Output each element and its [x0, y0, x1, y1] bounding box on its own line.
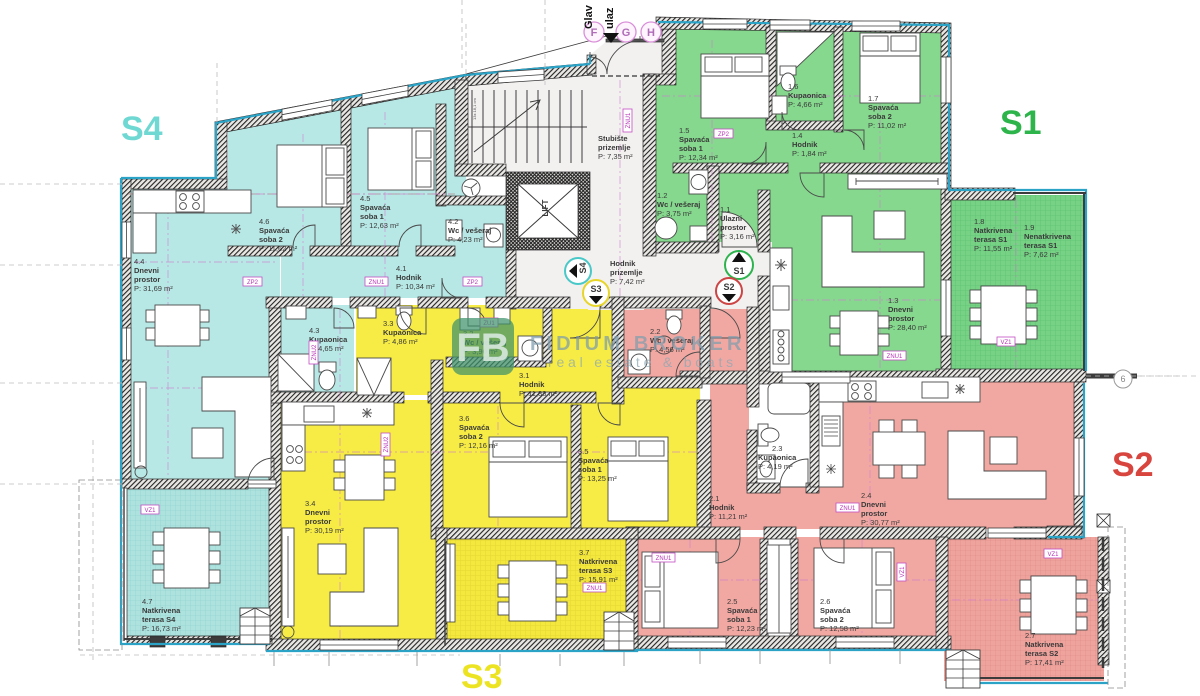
svg-text:Dnevni: Dnevni [861, 500, 886, 509]
svg-text:4.6: 4.6 [259, 217, 269, 226]
svg-text:P: 13,25 m²: P: 13,25 m² [578, 474, 617, 483]
svg-text:1.5: 1.5 [679, 126, 689, 135]
svg-text:2.6: 2.6 [820, 597, 830, 606]
svg-text:FB: FB [456, 326, 509, 370]
svg-text:real estate & boats: real estate & boats [548, 354, 737, 370]
svg-text:Spavaća: Spavaća [578, 456, 609, 465]
svg-text:prizemlje: prizemlje [598, 143, 631, 152]
svg-text:4.2: 4.2 [448, 217, 458, 226]
svg-text:4.3: 4.3 [309, 326, 319, 335]
svg-text:H: H [647, 27, 655, 39]
svg-text:soba 2: soba 2 [459, 432, 483, 441]
svg-text:Nenatkrivena: Nenatkrivena [1024, 232, 1072, 241]
svg-text:prizemlje: prizemlje [610, 268, 643, 277]
svg-text:4.7: 4.7 [142, 597, 152, 606]
svg-text:P: 17,41 m²: P: 17,41 m² [1025, 658, 1064, 667]
svg-text:Kupaonica: Kupaonica [758, 453, 797, 462]
svg-text:terasa S1: terasa S1 [1024, 241, 1057, 250]
svg-text:3.6: 3.6 [459, 414, 469, 423]
svg-text:S3: S3 [461, 658, 503, 696]
svg-text:Dnevni: Dnevni [888, 305, 913, 314]
svg-text:Natkrivena: Natkrivena [579, 557, 618, 566]
svg-text:Spavaća: Spavaća [868, 103, 899, 112]
svg-text:Spavaća: Spavaća [727, 606, 758, 615]
svg-text:S4: S4 [121, 110, 163, 148]
svg-text:3.4: 3.4 [305, 499, 315, 508]
svg-text:Natkrivena: Natkrivena [1025, 640, 1064, 649]
svg-text:P: 16,73 m²: P: 16,73 m² [142, 624, 181, 633]
svg-text:2.1: 2.1 [709, 494, 719, 503]
svg-text:S2: S2 [723, 282, 734, 292]
svg-text:S4: S4 [578, 262, 588, 273]
svg-text:P: 4,23 m²: P: 4,23 m² [448, 235, 483, 244]
svg-text:1.2: 1.2 [657, 191, 667, 200]
svg-text:soba 1: soba 1 [578, 465, 602, 474]
svg-text:Hodnik: Hodnik [519, 380, 545, 389]
svg-text:P: 7,35 m²: P: 7,35 m² [598, 152, 633, 161]
svg-text:13x 18,1 cm: 13x 18,1 cm [472, 98, 477, 120]
svg-text:1.1: 1.1 [720, 205, 730, 214]
svg-text:S1: S1 [1000, 104, 1042, 142]
svg-text:P: 4,86 m²: P: 4,86 m² [383, 337, 418, 346]
svg-text:Natkrivena: Natkrivena [142, 606, 181, 615]
svg-text:ulaz: ulaz [604, 7, 616, 29]
svg-text:soba 2: soba 2 [868, 112, 892, 121]
svg-text:LIFT: LIFT [541, 199, 550, 216]
svg-text:4.5: 4.5 [360, 194, 370, 203]
svg-text:P: 11,21 m²: P: 11,21 m² [709, 512, 748, 521]
svg-text:S1: S1 [733, 266, 744, 276]
svg-text:P: 4,19 m²: P: 4,19 m² [758, 462, 793, 471]
svg-text:P: 12,58 m²: P: 12,58 m² [820, 624, 859, 633]
svg-text:P: 12,34 m²: P: 12,34 m² [679, 153, 718, 162]
svg-text:Stubište: Stubište [598, 134, 628, 143]
svg-text:Spavaća: Spavaća [360, 203, 391, 212]
svg-text:1.9: 1.9 [1024, 223, 1034, 232]
svg-text:2.5: 2.5 [727, 597, 737, 606]
svg-text:VZ1: VZ1 [1047, 552, 1059, 558]
svg-text:G: G [622, 27, 631, 39]
svg-text:Wc / vešeraj: Wc / vešeraj [657, 200, 700, 209]
svg-text:VZ1: VZ1 [144, 508, 156, 514]
svg-text:Hodnik: Hodnik [396, 273, 422, 282]
svg-text:P: 1,84 m²: P: 1,84 m² [792, 149, 827, 158]
svg-text:S3: S3 [590, 284, 601, 294]
svg-text:3.5: 3.5 [578, 447, 588, 456]
svg-text:1.6: 1.6 [788, 82, 798, 91]
svg-text:soba 1: soba 1 [679, 144, 703, 153]
svg-text:Hodnik: Hodnik [792, 140, 818, 149]
svg-text:ZP2: ZP2 [247, 280, 259, 286]
svg-text:Spavaća: Spavaća [259, 226, 290, 235]
svg-text:soba 2: soba 2 [259, 235, 283, 244]
svg-text:P: 7,62 m²: P: 7,62 m² [1024, 250, 1059, 259]
svg-text:2.4: 2.4 [861, 491, 871, 500]
svg-text:P: 10,34 m²: P: 10,34 m² [396, 282, 435, 291]
svg-text:terasa S4: terasa S4 [142, 615, 176, 624]
svg-text:Dnevni: Dnevni [305, 508, 330, 517]
svg-text:terasa S3: terasa S3 [579, 566, 612, 575]
svg-text:Hodnik: Hodnik [610, 259, 636, 268]
svg-text:P: 7,42 m²: P: 7,42 m² [610, 277, 645, 286]
svg-text:3.3: 3.3 [383, 319, 393, 328]
svg-text:P: 4,66 m²: P: 4,66 m² [788, 100, 823, 109]
svg-text:ZNU1: ZNU1 [369, 280, 385, 286]
svg-text:P: 3,75 m²: P: 3,75 m² [657, 209, 692, 218]
svg-text:P: 12,16 m²: P: 12,16 m² [459, 441, 498, 450]
svg-text:P: 30,77 m²: P: 30,77 m² [861, 518, 900, 527]
svg-text:4.1: 4.1 [396, 264, 406, 273]
svg-text:Dnevni: Dnevni [134, 266, 159, 275]
svg-text:1.3: 1.3 [888, 296, 898, 305]
svg-text:P: 11,62 m²: P: 11,62 m² [259, 244, 298, 253]
svg-text:P: 11,55 m²: P: 11,55 m² [974, 244, 1013, 253]
svg-text:ZNU1: ZNU1 [887, 354, 903, 360]
svg-text:prostor: prostor [720, 223, 746, 232]
svg-text:4.4: 4.4 [134, 257, 144, 266]
svg-text:P: 12,63 m²: P: 12,63 m² [360, 221, 399, 230]
svg-text:2.3: 2.3 [772, 444, 782, 453]
svg-text:3.1: 3.1 [519, 371, 529, 380]
svg-text:1.8: 1.8 [974, 217, 984, 226]
svg-text:P: 11,02 m²: P: 11,02 m² [868, 121, 907, 130]
svg-text:2.7: 2.7 [1025, 631, 1035, 640]
svg-text:P: 3,16 m²: P: 3,16 m² [720, 232, 755, 241]
svg-text:1.7: 1.7 [868, 94, 878, 103]
svg-text:VZ1: VZ1 [1000, 340, 1012, 346]
svg-text:Kupaonica: Kupaonica [383, 328, 422, 337]
svg-text:Spavaća: Spavaća [820, 606, 851, 615]
svg-text:P: 28,40 m²: P: 28,40 m² [888, 323, 927, 332]
svg-text:terasa S2: terasa S2 [1025, 649, 1058, 658]
svg-text:Kupaonica: Kupaonica [788, 91, 827, 100]
svg-text:S2: S2 [1112, 446, 1154, 484]
svg-text:soba 2: soba 2 [820, 615, 844, 624]
svg-text:VZ1: VZ1 [900, 566, 906, 578]
svg-text:prostor: prostor [134, 275, 160, 284]
svg-text:ZP2: ZP2 [718, 132, 730, 138]
svg-text:soba 1: soba 1 [727, 615, 751, 624]
svg-text:P: 31,69 m²: P: 31,69 m² [134, 284, 173, 293]
svg-text:P: 12,23 m²: P: 12,23 m² [727, 624, 766, 633]
svg-text:ZNU1: ZNU1 [587, 586, 603, 592]
svg-text:P: 11,88 m²: P: 11,88 m² [519, 389, 558, 398]
svg-text:Wc / vešeraj: Wc / vešeraj [448, 226, 491, 235]
svg-text:ZNU2: ZNU2 [384, 436, 390, 452]
svg-text:Spavaća: Spavaća [679, 135, 710, 144]
svg-text:6: 6 [1120, 374, 1125, 384]
svg-text:soba 1: soba 1 [360, 212, 384, 221]
svg-text:Ulazni: Ulazni [720, 214, 742, 223]
svg-text:prostor: prostor [888, 314, 914, 323]
svg-text:FIDIUM BROKER: FIDIUM BROKER [530, 333, 746, 355]
svg-text:terasa S1: terasa S1 [974, 235, 1007, 244]
svg-text:3.7: 3.7 [579, 548, 589, 557]
svg-text:ZNU1: ZNU1 [626, 112, 632, 128]
svg-text:Hodnik: Hodnik [709, 503, 735, 512]
svg-text:P: 30,19 m²: P: 30,19 m² [305, 526, 344, 535]
svg-text:ZNU2: ZNU2 [312, 344, 318, 360]
svg-text:ZP2: ZP2 [467, 280, 479, 286]
svg-text:Natkrivena: Natkrivena [974, 226, 1013, 235]
svg-text:prostor: prostor [305, 517, 331, 526]
svg-text:1.4: 1.4 [792, 131, 802, 140]
svg-text:ZNU1: ZNU1 [840, 506, 856, 512]
svg-text:prostor: prostor [861, 509, 887, 518]
svg-text:ZNU1: ZNU1 [656, 556, 672, 562]
svg-text:Spavaća: Spavaća [459, 423, 490, 432]
svg-text:Glav: Glav [583, 4, 595, 29]
